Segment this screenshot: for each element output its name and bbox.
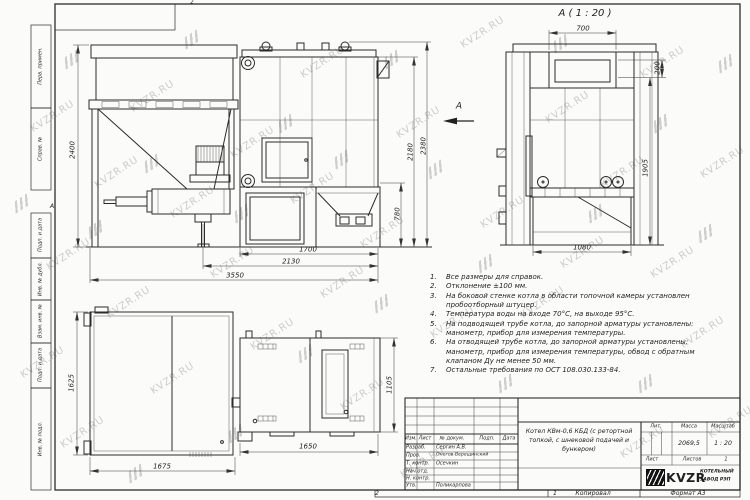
note-number: 4.	[430, 310, 446, 319]
note-number	[430, 357, 446, 366]
dim-boiler-depth: 1105	[387, 376, 394, 394]
dim-furnace-length: 1700	[299, 247, 317, 254]
tb-doc-title-line2: топкой, с шнековой подачей и	[529, 438, 629, 444]
margin-field-perv-primen: Перв. примен.	[39, 47, 44, 85]
note-text: Все размеры для справок.	[446, 273, 543, 282]
note-text: Температура воды на входе 70°С, на выход…	[446, 310, 634, 319]
company-name-line2: ЗАВОД РЭП	[700, 479, 731, 484]
notes-list: 1.Все размеры для справок.2.Отклонение ±…	[430, 273, 738, 376]
note-text: манометр, прибор для измерения температу…	[446, 329, 625, 338]
margin-field-podp-data-1: Подп. и дата	[39, 218, 44, 252]
tb-role-nkontr: Н. контр.	[406, 476, 430, 481]
note-number: 2.	[430, 282, 446, 291]
note-line: 1.Все размеры для справок.	[430, 273, 738, 282]
tb-sheet-label: Лист	[646, 458, 659, 463]
note-line: манометр, прибор для измерения температу…	[430, 329, 738, 338]
tb-header-list: Лист	[419, 437, 432, 442]
dim-bunker-depth: 1625	[69, 374, 76, 392]
margin-field-inv-dubl: Инв. № дубл.	[39, 262, 44, 296]
format-label: Формат А3	[670, 490, 705, 496]
margin-field-sprav-no: Справ. №	[39, 137, 44, 161]
dim-feeder-length: 2130	[282, 259, 300, 266]
note-line: 7.Остальные требования по ОСТ 108.030.13…	[430, 366, 738, 375]
note-line: 5.На подводящей трубе котла, до запорной…	[430, 320, 738, 329]
tb-doc-title-line3: бункером)	[562, 447, 596, 453]
tb-role-nachotd: Нач.отд.	[406, 469, 428, 474]
tb-header-izm: Изм.	[405, 437, 417, 442]
dim-overall-length: 3550	[226, 273, 244, 280]
note-text: На подводящей трубе котла, до запорной а…	[446, 320, 694, 329]
note-text: клапаном Ду не менее 50 мм.	[446, 357, 556, 366]
tb-header-podp: Подп.	[479, 437, 494, 442]
note-number	[430, 301, 446, 310]
note-text: Отклонение ±100 мм.	[446, 282, 527, 291]
tb-name-utv: Поликарпова	[436, 484, 471, 489]
note-text: Остальные требования по ОСТ 108.030.133-…	[446, 366, 621, 375]
margin-field-vzam-inv: Взам. инв. №	[39, 304, 44, 338]
note-line: пробоотборный штуцер.	[430, 301, 738, 310]
dim-bunker-height: 2400	[70, 141, 77, 159]
tb-role-prov: Пров.	[406, 454, 421, 459]
note-number: 7.	[430, 366, 446, 375]
tb-name-razrab: Сергин А.В.	[436, 446, 467, 451]
note-line: 4.Температура воды на входе 70°С, на вых…	[430, 310, 738, 319]
company-name-line1: КОТЕЛЬНЫЙ	[700, 471, 734, 476]
zone-letter-left: А	[50, 204, 54, 210]
dim-sec-body-height: 1905	[643, 159, 650, 177]
dim-boiler-width: 1650	[299, 444, 317, 451]
note-number	[430, 329, 446, 338]
note-line: 6.На отводящей трубе котла, до запорной …	[430, 338, 738, 347]
tb-mass-value: 2069,5	[678, 441, 700, 447]
tb-role-utv: Утв.	[406, 484, 417, 489]
tb-scale-label: Масштаб	[711, 425, 735, 430]
copy-sheet-number: 1	[553, 490, 557, 496]
dim-boiler-height-body: 2180	[408, 143, 415, 161]
note-line: 2.Отклонение ±100 мм.	[430, 282, 738, 291]
margin-field-inv-podl: Инв. № подл.	[39, 422, 44, 457]
tb-sheets-value: 1	[724, 458, 727, 463]
tb-doc-title-line1: Котел КВм-0,6 КБД (с ретортной	[526, 429, 633, 435]
zone-number-top: 2	[190, 1, 193, 6]
section-view-title: А ( 1 : 20 )	[559, 9, 612, 19]
dim-boiler-height-overall: 2380	[421, 137, 428, 155]
note-line: 3.На боковой стенке котла в области топо…	[430, 292, 738, 301]
company-logo-icon	[646, 469, 665, 486]
note-text: пробоотборный штуцер.	[446, 301, 537, 310]
tb-scale-value: 1 : 20	[714, 441, 732, 447]
tb-name-prov: Онегов-Верещинский	[436, 454, 488, 459]
note-line: манометр, прибор для измерения температу…	[430, 348, 738, 357]
drawing-linework	[0, 0, 750, 500]
tb-role-razrab: Разраб.	[406, 446, 426, 451]
tb-role-tkontr: Т. контр.	[406, 462, 429, 467]
note-text: манометр, прибор для измерения температу…	[446, 348, 695, 357]
tb-header-data: Дата	[503, 437, 516, 442]
tb-mass-label: Масса	[681, 425, 697, 430]
tb-lit-label: Лит.	[650, 425, 662, 430]
tb-header-doc: № докум.	[440, 437, 465, 442]
zone-number-bottom: 2	[375, 491, 379, 497]
dim-ash-section-height: 780	[395, 207, 402, 220]
tb-name-tkontr: Осечкин	[436, 462, 458, 467]
note-number: 1.	[430, 273, 446, 282]
tb-sheets-label: Листов	[683, 458, 702, 463]
note-number: 5.	[430, 320, 446, 329]
note-number: 3.	[430, 292, 446, 301]
dim-sec-base-width: 1080	[573, 245, 591, 252]
note-number: 6.	[430, 338, 446, 347]
note-text: На отводящей трубе котла, до запорной ар…	[446, 338, 688, 347]
note-number	[430, 348, 446, 357]
drawing-sheet: KVZR.RUKVZR.RUKVZR.RUKVZR.RUKVZR.RUKVZR.…	[0, 0, 750, 500]
dim-sec-top-width: 700	[576, 26, 589, 33]
note-text: На боковой стенке котла в области топочн…	[446, 292, 690, 301]
dim-sec-collar-height: 200	[655, 61, 662, 74]
section-arrow-label: А	[456, 103, 462, 112]
note-line: клапаном Ду не менее 50 мм.	[430, 357, 738, 366]
margin-field-podp-data-2: Подп. и дата	[39, 348, 44, 382]
copied-label: Копировал	[575, 490, 610, 496]
dim-bunker-width: 1675	[153, 464, 171, 471]
